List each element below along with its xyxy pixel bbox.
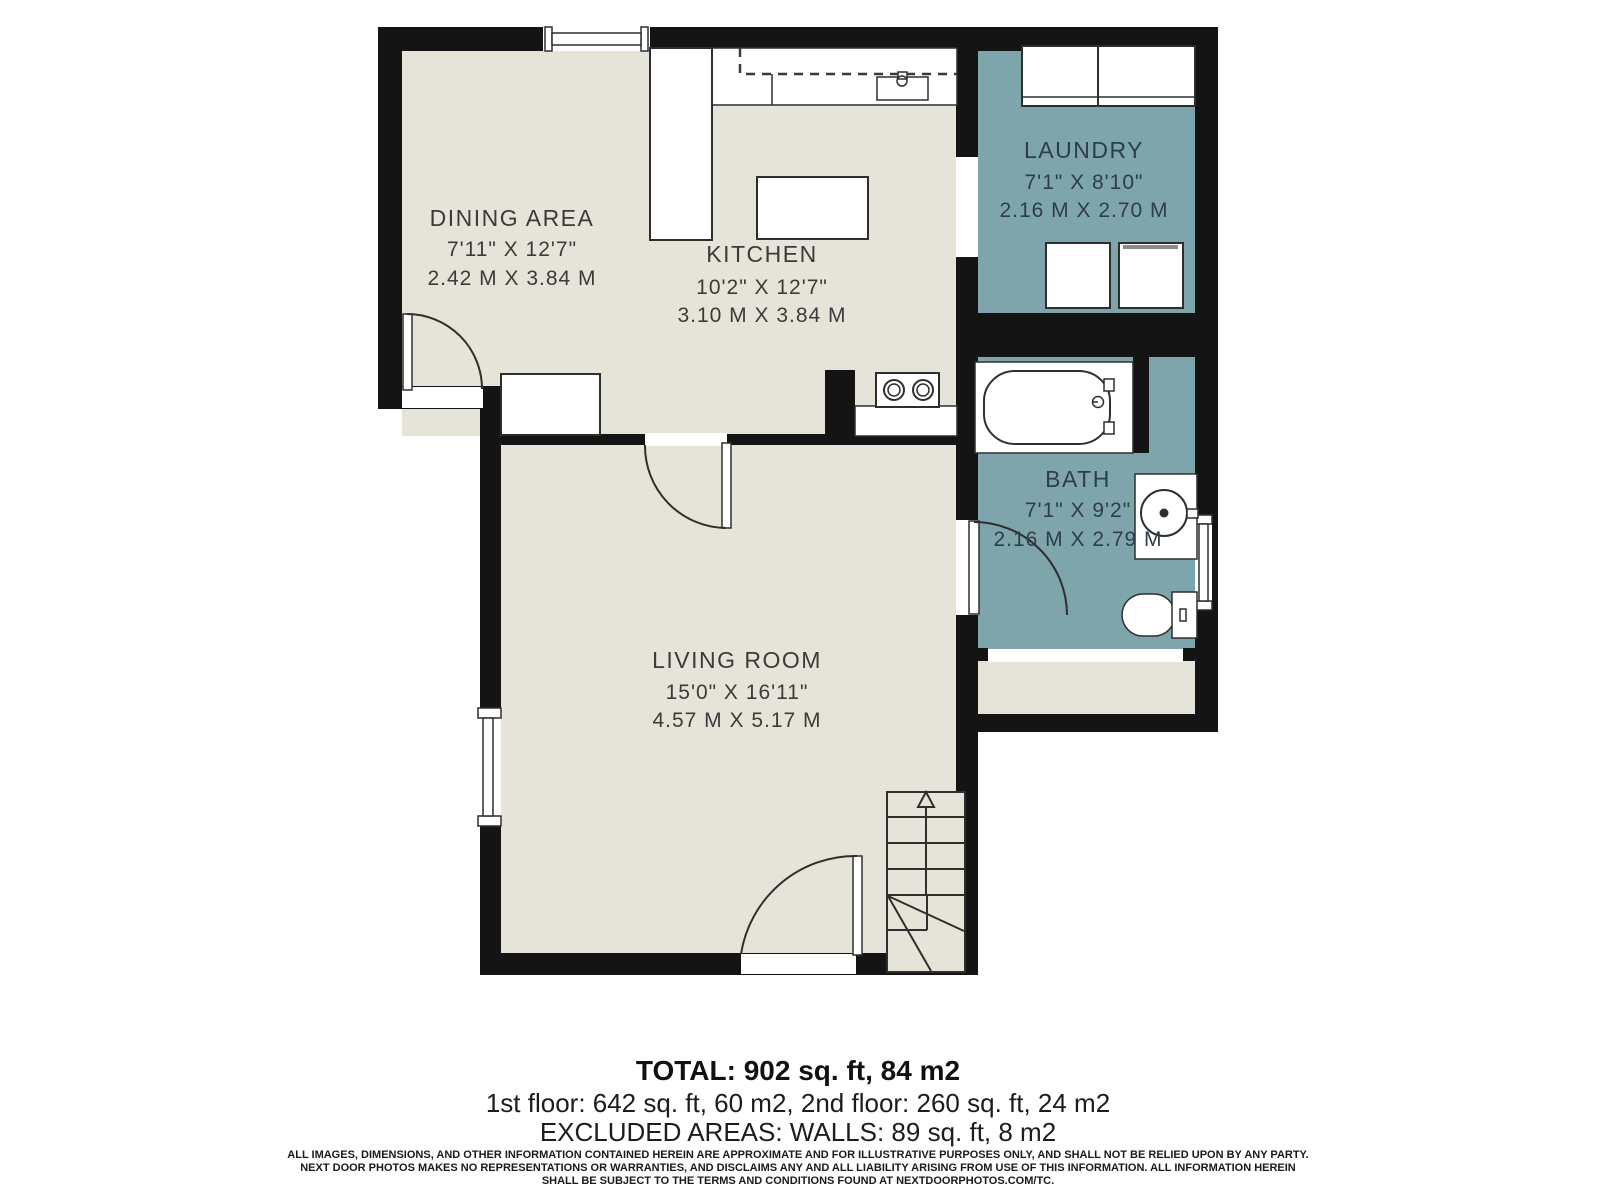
window-cap <box>478 816 501 826</box>
dining-window <box>543 27 650 51</box>
wall-left <box>378 27 402 409</box>
room-name: LAUNDRY <box>1024 137 1144 163</box>
wall-hall-south <box>956 714 1218 732</box>
room-dims-ft: 10'2" X 12'7" <box>696 276 828 299</box>
disclaimer-line: NEXT DOOR PHOTOS MAKES NO REPRESENTATION… <box>300 1162 1296 1174</box>
total-area-text: TOTAL: 902 sq. ft, 84 m2 <box>636 1055 960 1086</box>
room-dims-ft: 7'1" X 8'10" <box>1025 171 1144 194</box>
dryer-body <box>1119 243 1183 308</box>
tub-basin <box>984 371 1110 444</box>
wall-living-west <box>480 386 501 975</box>
living-south-door-opening <box>741 954 856 974</box>
pantry-cabinet <box>650 48 712 240</box>
wall-laundry-south <box>956 313 1197 357</box>
toilet-flush-button <box>1180 609 1186 621</box>
closet-box <box>501 374 600 435</box>
disclaimer-block: ALL IMAGES, DIMENSIONS, AND OTHER INFORM… <box>287 1149 1308 1187</box>
floor-areas-text: 1st floor: 642 sq. ft, 60 m2, 2nd floor:… <box>486 1088 1110 1118</box>
disclaimer-line: SHALL BE SUBJECT TO THE TERMS AND CONDIT… <box>542 1175 1054 1187</box>
window-glass <box>552 33 641 45</box>
window-cap <box>641 27 648 51</box>
wall-right <box>1195 27 1218 732</box>
kitchen-island <box>757 177 868 239</box>
wall-hall-nub-left <box>978 648 988 661</box>
toilet-fixture <box>1122 592 1197 638</box>
laundry-label-group: LAUNDRY 7'1" X 8'10" 2.16 M X 2.70 M <box>999 137 1168 222</box>
kitchen-laundry-opening <box>956 157 978 257</box>
area-summary: TOTAL: 902 sq. ft, 84 m2 1st floor: 642 … <box>486 1055 1110 1147</box>
toilet-bowl <box>1122 594 1175 636</box>
excluded-areas-text: EXCLUDED AREAS: WALLS: 89 sq. ft, 8 m2 <box>540 1117 1056 1147</box>
window-glass <box>483 718 493 816</box>
living-window <box>478 708 501 826</box>
room-dims-m: 3.10 M X 3.84 M <box>677 304 846 327</box>
door-leaf <box>403 314 412 390</box>
room-dims-ft: 15'0" X 16'11" <box>666 681 809 704</box>
wall-kitchen-stub <box>825 370 855 436</box>
room-name: LIVING ROOM <box>652 647 822 673</box>
drain <box>1160 509 1169 518</box>
window-cap <box>478 708 501 718</box>
window-glass <box>1199 524 1208 601</box>
floor-plan: DINING AREA 7'11" X 12'7" 2.42 M X 3.84 … <box>0 0 1600 1200</box>
sink-basin <box>877 77 928 100</box>
hall-cased-opening <box>988 649 1183 662</box>
wall-tub-stub <box>1133 357 1149 453</box>
dryer <box>1119 243 1183 308</box>
bathtub-fixture <box>975 362 1133 453</box>
sink-faucet <box>1187 509 1198 518</box>
room-dims-ft: 7'11" X 12'7" <box>447 238 577 261</box>
living-label-group: LIVING ROOM 15'0" X 16'11" 4.57 M X 5.17… <box>652 647 822 732</box>
room-dims-m: 2.16 M X 2.70 M <box>999 199 1168 222</box>
room-name: BATH <box>1045 466 1111 492</box>
room-name: DINING AREA <box>430 205 595 231</box>
dining-label-group: DINING AREA 7'11" X 12'7" 2.42 M X 3.84 … <box>427 205 596 290</box>
tub-faucet-mount <box>1104 379 1114 391</box>
room-dims-m: 2.16 M X 2.79 M <box>993 528 1162 551</box>
room-dims-m: 2.42 M X 3.84 M <box>427 267 596 290</box>
door-leaf <box>722 443 731 528</box>
disclaimer-line: ALL IMAGES, DIMENSIONS, AND OTHER INFORM… <box>287 1149 1308 1161</box>
room-name: KITCHEN <box>706 241 817 267</box>
room-dims-m: 4.57 M X 5.17 M <box>652 709 821 732</box>
window-cap <box>545 27 552 51</box>
laundry-cabinets <box>1022 46 1195 106</box>
door-leaf <box>969 521 979 614</box>
door-leaf <box>853 856 862 955</box>
washer <box>1046 243 1110 308</box>
living-north-door-opening <box>645 433 727 446</box>
wall-hall-nub-right <box>1183 648 1195 661</box>
room-dims-ft: 7'1" X 9'2" <box>1025 499 1131 522</box>
stove-counter <box>855 406 957 436</box>
dining-door-opening <box>402 387 483 408</box>
tub-faucet-mount <box>1104 422 1114 434</box>
stairs <box>887 792 965 972</box>
